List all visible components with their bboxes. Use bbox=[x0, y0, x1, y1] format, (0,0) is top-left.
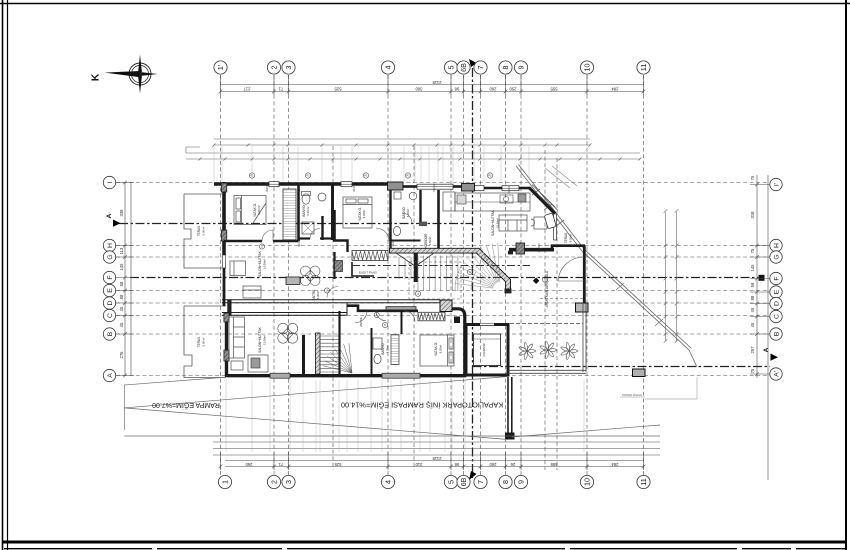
svg-text:75: 75 bbox=[750, 368, 755, 373]
svg-text:88: 88 bbox=[750, 295, 755, 300]
svg-text:P2: P2 bbox=[306, 174, 310, 178]
svg-text:284: 284 bbox=[611, 462, 619, 467]
svg-text:260: 260 bbox=[245, 462, 253, 467]
svg-text:9: 9 bbox=[517, 480, 526, 484]
svg-text:525: 525 bbox=[334, 462, 342, 467]
svg-text:3: 3 bbox=[284, 66, 293, 70]
svg-text:150/220: 150/220 bbox=[433, 183, 436, 192]
svg-text:45: 45 bbox=[119, 306, 124, 311]
svg-text:88: 88 bbox=[119, 294, 124, 299]
svg-text:YATAK O.: YATAK O. bbox=[358, 207, 362, 221]
svg-text:26: 26 bbox=[510, 462, 515, 467]
svg-text:2: 2 bbox=[270, 480, 279, 484]
svg-text:5: 5 bbox=[447, 66, 456, 70]
svg-text:250: 250 bbox=[509, 87, 517, 92]
svg-text:B: B bbox=[107, 331, 114, 336]
svg-text:6.00m²: 6.00m² bbox=[202, 227, 206, 236]
svg-text:8: 8 bbox=[501, 480, 510, 484]
svg-text:10: 10 bbox=[583, 64, 592, 72]
svg-text:D: D bbox=[774, 301, 781, 306]
svg-text:284: 284 bbox=[611, 87, 619, 92]
svg-text:P1: P1 bbox=[364, 174, 368, 178]
svg-text:APARTMAN GİRİŞ HOLÜ: APARTMAN GİRİŞ HOLÜ bbox=[544, 270, 549, 307]
svg-text:G: G bbox=[107, 254, 114, 259]
svg-text:75: 75 bbox=[750, 175, 755, 180]
svg-text:H: H bbox=[774, 243, 781, 248]
svg-text:ASANSÖR: ASANSÖR bbox=[482, 343, 486, 356]
svg-text:300: 300 bbox=[415, 87, 423, 92]
svg-text:A: A bbox=[106, 213, 113, 218]
svg-text:98: 98 bbox=[454, 87, 459, 92]
svg-text:2118: 2118 bbox=[432, 456, 442, 461]
svg-text:G: G bbox=[774, 254, 781, 259]
svg-text:75: 75 bbox=[750, 248, 755, 253]
svg-text:F: F bbox=[107, 275, 114, 279]
svg-text:ANTRE: ANTRE bbox=[312, 290, 316, 301]
svg-text:9: 9 bbox=[517, 66, 526, 70]
svg-text:B: B bbox=[774, 331, 781, 336]
svg-text:K: K bbox=[90, 73, 102, 81]
svg-text:BANYO: BANYO bbox=[381, 343, 385, 355]
svg-text:4.20m²: 4.20m² bbox=[386, 345, 390, 353]
svg-text:I: I bbox=[107, 181, 114, 183]
svg-text:2: 2 bbox=[270, 66, 279, 70]
svg-text:145: 145 bbox=[750, 264, 755, 272]
svg-text:TERAS: TERAS bbox=[197, 226, 201, 237]
svg-text:1: 1 bbox=[221, 480, 230, 484]
svg-text:SALON+MUTFAK: SALON+MUTFAK bbox=[491, 209, 495, 235]
svg-text:100/220: 100/220 bbox=[538, 243, 541, 252]
svg-text:E: E bbox=[107, 288, 114, 293]
svg-text:150/220: 150/220 bbox=[266, 183, 269, 192]
svg-text:113: 113 bbox=[119, 247, 124, 254]
svg-text:58: 58 bbox=[119, 281, 124, 286]
svg-text:P1: P1 bbox=[250, 174, 254, 178]
svg-text:4: 4 bbox=[384, 480, 393, 484]
svg-text:11: 11 bbox=[639, 64, 648, 71]
svg-text:13.00m²: 13.00m² bbox=[263, 259, 267, 269]
svg-text:3.50m²: 3.50m² bbox=[428, 237, 432, 245]
svg-text:5.30m²: 5.30m² bbox=[316, 291, 320, 299]
svg-text:F: F bbox=[774, 276, 781, 280]
svg-text:276: 276 bbox=[119, 351, 124, 359]
svg-text:TOPRAK DOLGU: TOPRAK DOLGU bbox=[622, 393, 643, 397]
svg-text:YATAK O.: YATAK O. bbox=[434, 342, 438, 356]
svg-text:10: 10 bbox=[583, 478, 592, 486]
svg-text:45: 45 bbox=[119, 322, 124, 327]
svg-text:9.20m²: 9.20m² bbox=[569, 234, 573, 242]
svg-text:9.20m²: 9.20m² bbox=[362, 210, 366, 218]
svg-text:KAPALIOTOPARK İNİŞ RAMPASI EĞİ: KAPALIOTOPARK İNİŞ RAMPASI EĞİM=%14.00 bbox=[341, 401, 503, 410]
svg-text:45: 45 bbox=[750, 307, 755, 312]
svg-text:6.00m²: 6.00m² bbox=[202, 338, 206, 347]
svg-text:555: 555 bbox=[550, 87, 558, 92]
svg-text:C: C bbox=[774, 314, 781, 319]
svg-text:BANYO: BANYO bbox=[302, 205, 306, 217]
svg-text:SALON+MUTFAK: SALON+MUTFAK bbox=[258, 250, 262, 276]
svg-text:260: 260 bbox=[489, 462, 497, 467]
svg-text:260: 260 bbox=[489, 87, 497, 92]
svg-text:TERAS: TERAS bbox=[197, 337, 201, 348]
svg-text:98: 98 bbox=[454, 462, 459, 467]
svg-text:KORİDOR: KORİDOR bbox=[423, 233, 428, 249]
svg-text:A': A' bbox=[774, 371, 781, 377]
svg-text:I': I' bbox=[774, 183, 781, 186]
svg-text:6B: 6B bbox=[459, 63, 468, 72]
svg-text:70/220: 70/220 bbox=[392, 239, 395, 247]
svg-text:C: C bbox=[107, 313, 114, 318]
svg-text:P1: P1 bbox=[488, 174, 492, 178]
svg-text:YATAK O.: YATAK O. bbox=[253, 203, 257, 217]
svg-text:1': 1' bbox=[216, 64, 225, 70]
svg-text:6B: 6B bbox=[459, 477, 468, 486]
svg-text:5.20 m²: 5.20 m² bbox=[306, 206, 310, 215]
svg-text:8: 8 bbox=[501, 66, 510, 70]
svg-text:5: 5 bbox=[447, 480, 456, 484]
svg-text:13.00m²: 13.00m² bbox=[263, 335, 267, 345]
svg-text:338: 338 bbox=[119, 209, 124, 217]
svg-text:257: 257 bbox=[750, 346, 755, 354]
svg-text:310: 310 bbox=[415, 462, 423, 467]
svg-text:P3: P3 bbox=[406, 174, 410, 178]
svg-text:4: 4 bbox=[384, 66, 393, 70]
svg-text:58: 58 bbox=[750, 282, 755, 287]
svg-text:217: 217 bbox=[243, 87, 251, 92]
svg-text:H: H bbox=[107, 243, 114, 248]
svg-text:A: A bbox=[763, 347, 770, 352]
svg-text:80/220: 80/220 bbox=[298, 239, 301, 247]
svg-text:2118: 2118 bbox=[432, 80, 442, 85]
svg-text:71: 71 bbox=[278, 462, 283, 467]
svg-text:145: 145 bbox=[119, 263, 124, 271]
svg-text:525: 525 bbox=[334, 87, 342, 92]
svg-text:7: 7 bbox=[476, 66, 485, 70]
svg-text:71: 71 bbox=[278, 87, 283, 92]
svg-text:555: 555 bbox=[550, 462, 558, 467]
svg-text:318: 318 bbox=[750, 211, 755, 219]
svg-text:90/220: 90/220 bbox=[353, 184, 356, 192]
svg-text:D: D bbox=[107, 300, 114, 305]
svg-text:3: 3 bbox=[284, 480, 293, 484]
svg-text:ELEKT. PANO: ELEKT. PANO bbox=[359, 271, 378, 275]
svg-text:TERAS: TERAS bbox=[564, 233, 568, 244]
svg-text:9.20m²: 9.20m² bbox=[439, 345, 443, 353]
svg-text:SALON+MUTFAK: SALON+MUTFAK bbox=[258, 326, 262, 352]
svg-text:RAMPA EĞİM=%7.00: RAMPA EĞİM=%7.00 bbox=[152, 401, 220, 410]
svg-text:9.00 m²: 9.00 m² bbox=[257, 205, 261, 214]
svg-text:11: 11 bbox=[639, 478, 648, 485]
svg-text:A: A bbox=[107, 373, 114, 378]
svg-text:90/220: 90/220 bbox=[508, 186, 511, 194]
svg-text:E: E bbox=[774, 289, 781, 294]
svg-text:7: 7 bbox=[476, 480, 485, 484]
svg-text:45: 45 bbox=[750, 322, 755, 327]
